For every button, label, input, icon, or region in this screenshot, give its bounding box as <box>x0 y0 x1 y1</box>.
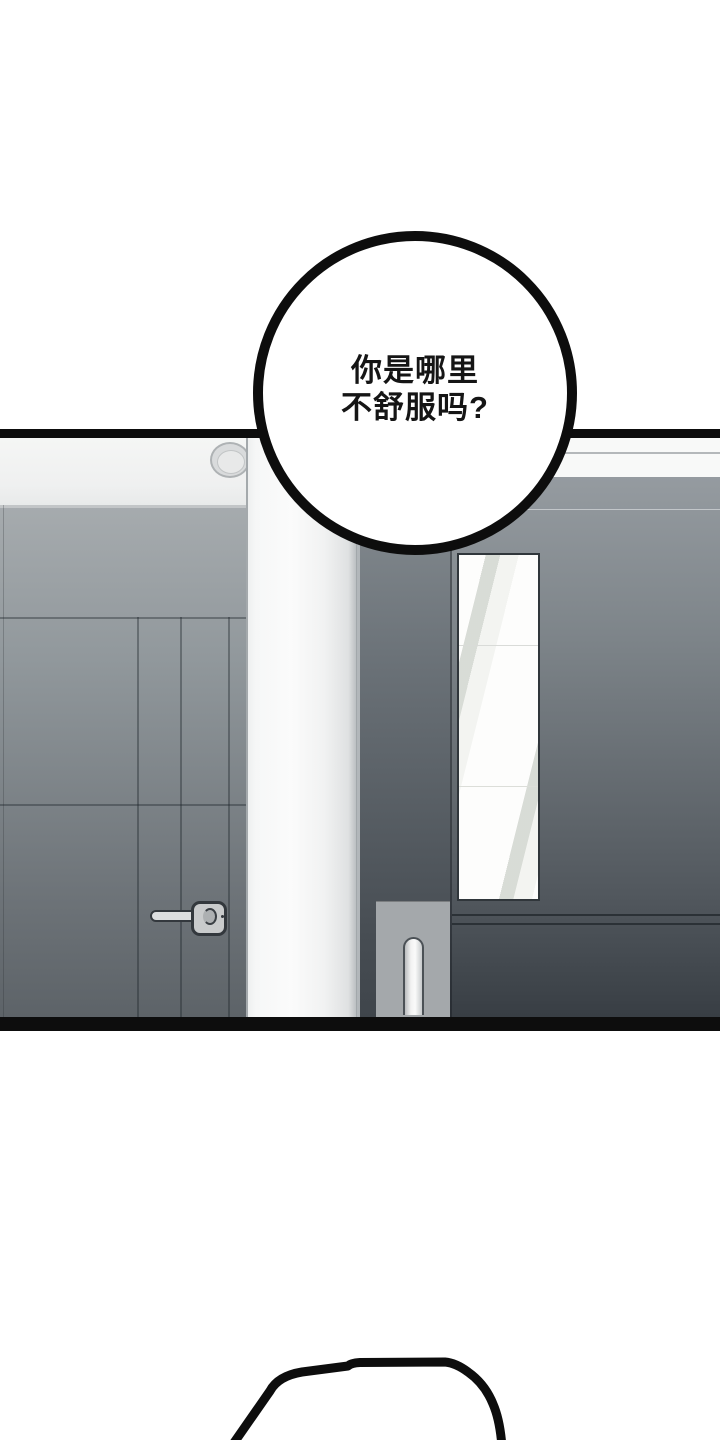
speech-text-line-2: 不舒服吗? <box>341 389 489 426</box>
left-paneled-door <box>0 505 246 1017</box>
wall-seam-lower-2 <box>452 923 720 925</box>
wall-seam-lower-1 <box>452 914 720 916</box>
mirror-reflection-line-1 <box>459 645 538 646</box>
door-handle-pivot <box>203 908 217 925</box>
door-top-highlight <box>0 505 246 508</box>
door-seam-horizontal-2 <box>0 804 246 806</box>
comic-page: 你是哪里 不舒服吗? <box>0 0 720 1440</box>
door-pull-handle <box>403 937 424 1015</box>
ceiling-lamp <box>210 442 246 478</box>
door-seam-vertical-3 <box>228 617 230 1017</box>
middle-dark-door <box>357 477 450 1017</box>
speech-text-line-1: 你是哪里 <box>351 352 479 389</box>
mirror-reflection-line-2 <box>459 786 538 787</box>
door-seam-vertical-2 <box>180 617 182 1017</box>
door-left-edge-line <box>3 505 4 1017</box>
door-seam-vertical-1 <box>137 617 139 1017</box>
ceiling <box>0 438 246 505</box>
panel-bottom-border <box>0 1017 720 1031</box>
door-seam-horizontal-1 <box>0 617 246 619</box>
wall-mirror <box>457 553 540 901</box>
bottom-speech-bubble <box>210 1352 515 1440</box>
ceiling-lamp-inner-ring <box>217 450 245 474</box>
speech-bubble: 你是哪里 不舒服吗? <box>253 231 577 555</box>
door-handle-screw <box>221 915 224 918</box>
right-dark-wall <box>450 477 720 1017</box>
